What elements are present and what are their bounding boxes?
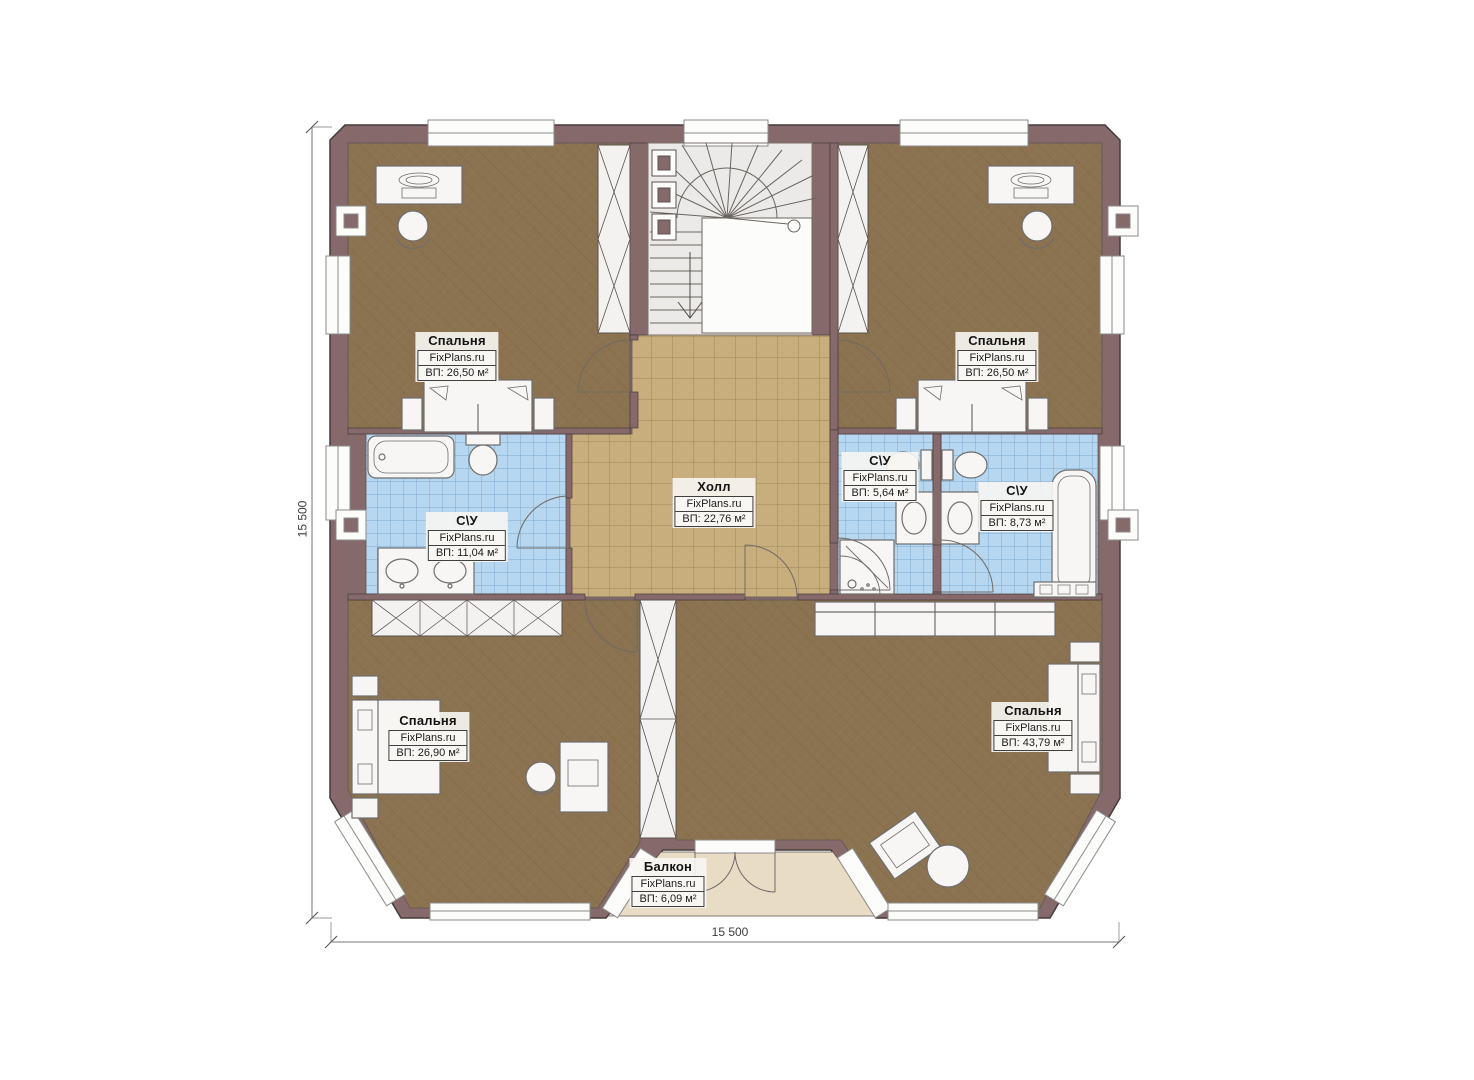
pilaster-left-lower: [336, 510, 366, 540]
window-right-upper: [1100, 256, 1124, 334]
dimension-left-label: 15 500: [295, 501, 309, 538]
room-brand: FixPlans.ru: [981, 501, 1052, 516]
room-brand: FixPlans.ru: [675, 497, 752, 512]
window-left-upper: [326, 256, 350, 334]
room-area: ВП: 26,50 м²: [958, 366, 1035, 380]
room-area: ВП: 11,04 м²: [429, 546, 505, 560]
room-area: ВП: 26,50 м²: [418, 366, 495, 380]
room-label-bedroom-top-left: Спальня FixPlans.ru ВП: 26,50 м²: [415, 332, 498, 382]
window-left-lower: [326, 446, 350, 520]
dimension-bottom-label: 15 500: [695, 925, 765, 939]
room-name: Спальня: [388, 713, 467, 728]
pilaster-right-upper: [1108, 206, 1138, 236]
room-name: Спальня: [993, 703, 1072, 718]
window-top-left: [428, 120, 554, 146]
room-label-bathroom-middle: С\У FixPlans.ru ВП: 5,64 м²: [841, 452, 918, 502]
wardrobe-bottom-left-bedroom: [372, 600, 562, 636]
pilaster-right-lower: [1108, 510, 1138, 540]
room-name: С\У: [428, 513, 506, 528]
room-label-bathroom-right: С\У FixPlans.ru ВП: 8,73 м²: [978, 482, 1055, 532]
room-brand: FixPlans.ru: [389, 731, 466, 746]
balcony-door: [695, 840, 775, 853]
room-area: ВП: 5,64 м²: [844, 486, 915, 500]
room-name: Балкон: [631, 859, 704, 874]
room-brand: FixPlans.ru: [418, 351, 495, 366]
room-brand: FixPlans.ru: [994, 721, 1071, 736]
floor-plan-canvas: Спальня FixPlans.ru ВП: 26,50 м² Спальня…: [0, 0, 1474, 1080]
room-name: С\У: [980, 483, 1053, 498]
shaft-left-of-stairs: [598, 145, 630, 333]
room-label-bedroom-top-right: Спальня FixPlans.ru ВП: 26,50 м²: [955, 332, 1038, 382]
desk-top-left: [376, 166, 462, 204]
vanity-right-bath: [1034, 582, 1096, 597]
room-brand: FixPlans.ru: [958, 351, 1035, 366]
dresser-bottom-right: [815, 602, 1055, 636]
room-brand: FixPlans.ru: [632, 877, 703, 892]
bed-top-right: [896, 380, 1048, 432]
room-area: ВП: 8,73 м²: [981, 516, 1052, 530]
shower-middle-bath: [840, 540, 894, 594]
room-brand: FixPlans.ru: [429, 531, 505, 546]
room-label-bedroom-bottom-left: Спальня FixPlans.ru ВП: 26,90 м²: [386, 712, 469, 762]
room-label-hall: Холл FixPlans.ru ВП: 22,76 м²: [672, 478, 755, 528]
room-area: ВП: 43,79 м²: [994, 736, 1071, 750]
desk-top-right: [988, 166, 1074, 204]
sink-right-bath: [941, 492, 979, 544]
toilet-right-bath: [942, 450, 987, 480]
pilaster-left-upper: [336, 206, 366, 236]
window-bay-right-bottom: [888, 903, 1038, 920]
window-right-lower: [1100, 446, 1124, 520]
toilet-left-bath: [466, 434, 500, 475]
window-top-right: [900, 120, 1028, 146]
room-area: ВП: 6,09 м²: [632, 892, 703, 906]
room-area: ВП: 22,76 м²: [675, 512, 752, 526]
room-name: Спальня: [957, 333, 1036, 348]
vent-blocks: [652, 150, 676, 240]
side-table-bottom-right: [927, 845, 969, 887]
shaft-right-of-stairs: [838, 145, 868, 333]
room-brand: FixPlans.ru: [844, 471, 915, 486]
room-label-bathroom-left: С\У FixPlans.ru ВП: 11,04 м²: [426, 512, 508, 562]
shaft-between-bottom-bedrooms: [640, 600, 676, 838]
window-bay-left-bottom: [430, 903, 590, 920]
room-area: ВП: 26,90 м²: [389, 746, 466, 760]
room-name: Холл: [674, 479, 753, 494]
bed-top-left: [402, 380, 554, 432]
bathtub-right: [1052, 470, 1096, 596]
room-label-bedroom-bottom-right: Спальня FixPlans.ru ВП: 43,79 м²: [991, 702, 1074, 752]
room-name: Спальня: [417, 333, 496, 348]
room-label-balcony: Балкон FixPlans.ru ВП: 6,09 м²: [629, 858, 706, 908]
room-name: С\У: [843, 453, 916, 468]
window-top-stairs: [684, 120, 768, 146]
bathtub-left: [368, 436, 454, 478]
